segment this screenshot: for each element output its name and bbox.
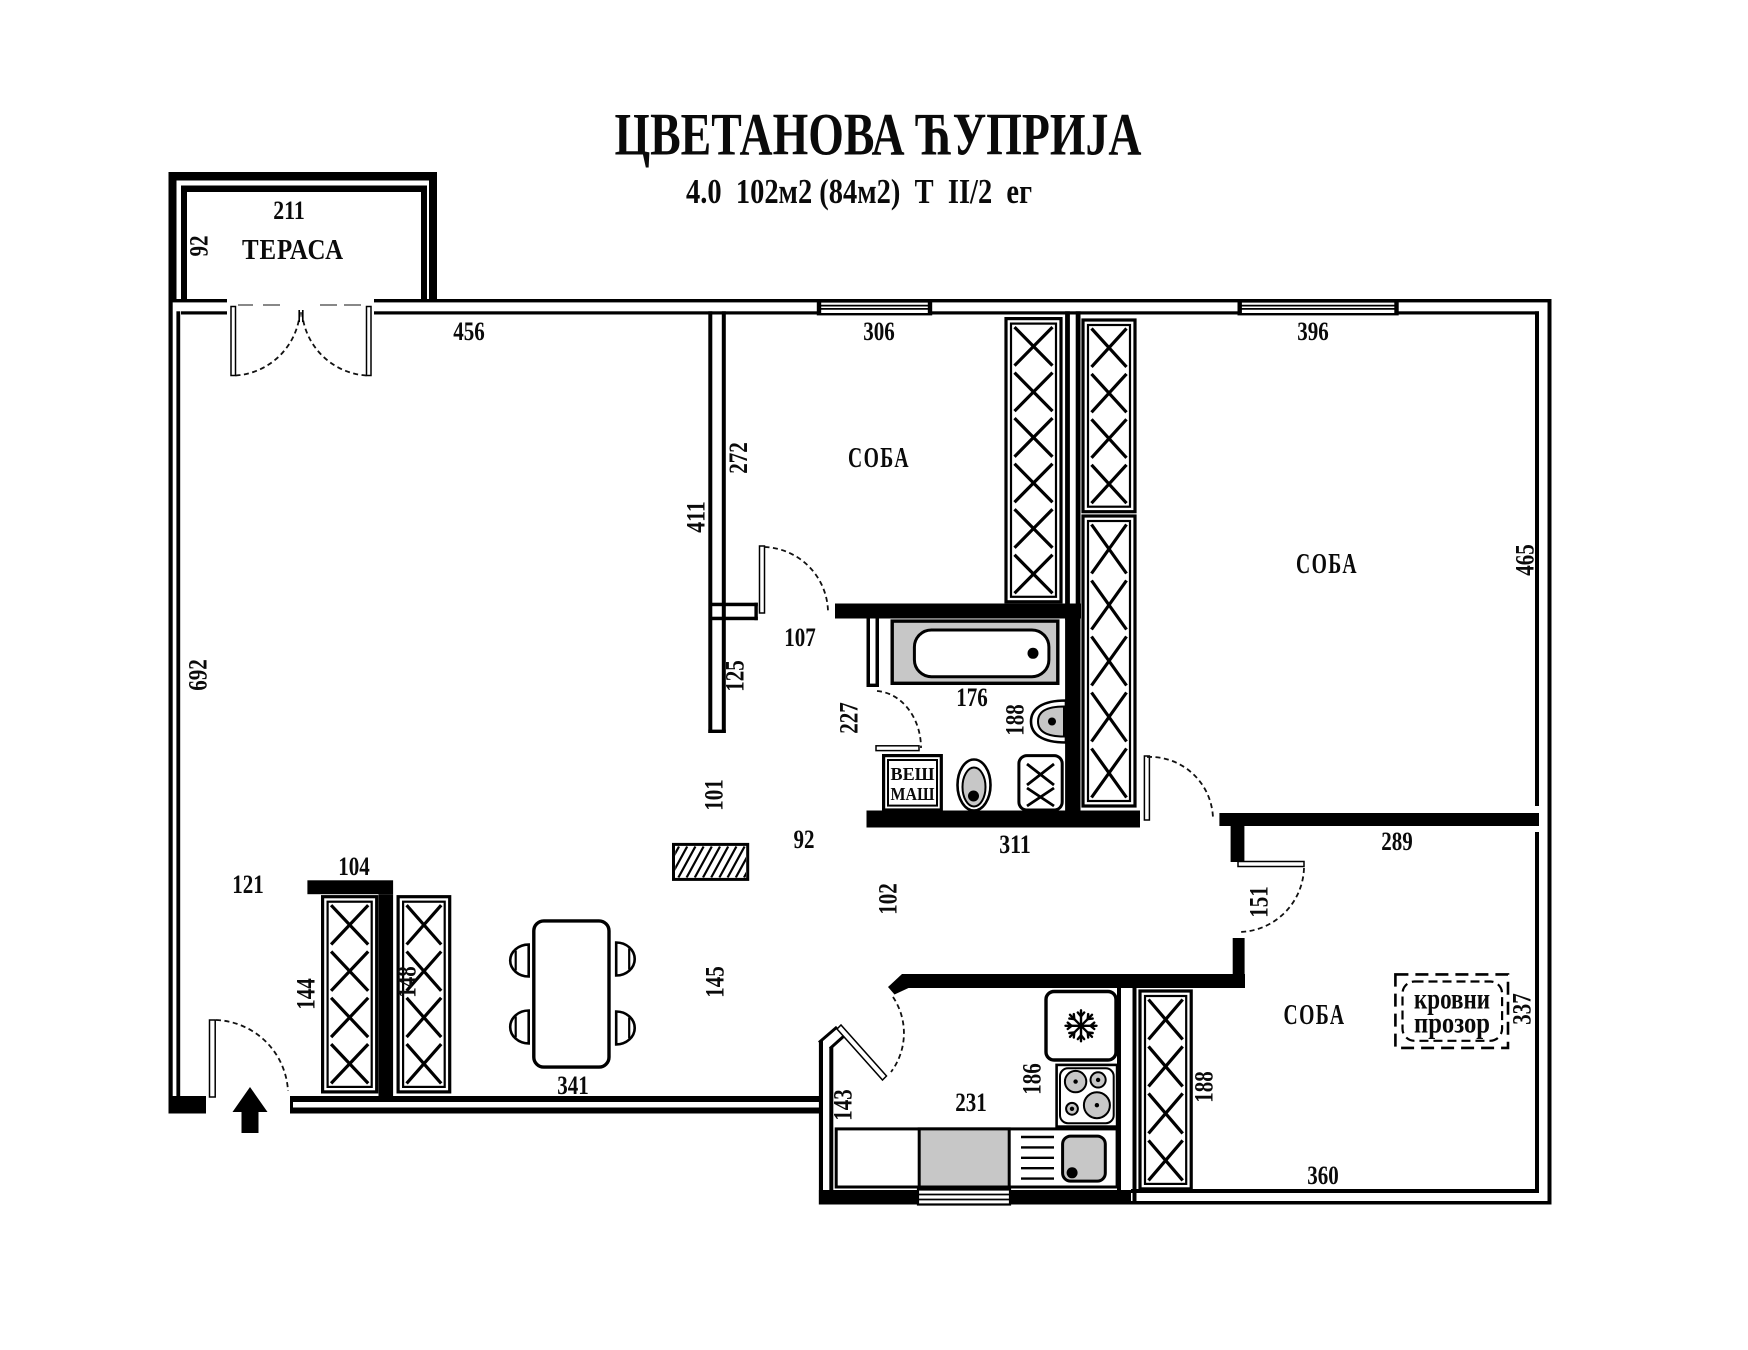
svg-text:456: 456 — [453, 317, 485, 346]
svg-text:СОБА: СОБА — [1296, 549, 1358, 580]
svg-text:188: 188 — [1001, 704, 1030, 736]
svg-text:92: 92 — [794, 825, 815, 854]
svg-text:411: 411 — [682, 501, 711, 533]
svg-text:102: 102 — [874, 883, 903, 915]
svg-text:341: 341 — [557, 1071, 589, 1100]
svg-text:360: 360 — [1307, 1161, 1339, 1190]
svg-text:337: 337 — [1508, 993, 1537, 1025]
svg-text:186: 186 — [1018, 1063, 1047, 1095]
svg-text:прозор: прозор — [1414, 1007, 1490, 1040]
svg-text:121: 121 — [232, 870, 264, 899]
svg-text:396: 396 — [1297, 317, 1329, 346]
svg-text:СОБА: СОБА — [1284, 1000, 1346, 1031]
svg-text:ТЕРАСА: ТЕРАСА — [242, 235, 344, 266]
svg-text:289: 289 — [1381, 827, 1413, 856]
svg-text:306: 306 — [863, 317, 895, 346]
svg-text:188: 188 — [1190, 1071, 1219, 1103]
svg-text:143: 143 — [829, 1089, 858, 1121]
svg-text:4.0 102м2 (84м2) Т II/2 ег: 4.0 102м2 (84м2) Т II/2 ег — [686, 172, 1032, 211]
svg-text:МАШ: МАШ — [891, 784, 935, 804]
svg-text:СОБА: СОБА — [848, 443, 910, 474]
svg-text:151: 151 — [1245, 886, 1274, 918]
svg-text:465: 465 — [1511, 544, 1540, 576]
svg-text:272: 272 — [724, 442, 753, 474]
svg-text:211: 211 — [273, 196, 305, 225]
svg-text:311: 311 — [999, 830, 1031, 859]
svg-text:107: 107 — [784, 623, 816, 652]
svg-text:101: 101 — [700, 779, 729, 811]
svg-text:ВЕШ: ВЕШ — [891, 764, 935, 784]
svg-text:144: 144 — [292, 978, 321, 1010]
svg-text:148: 148 — [393, 966, 422, 998]
svg-text:231: 231 — [955, 1088, 987, 1117]
svg-text:176: 176 — [956, 683, 988, 712]
svg-text:692: 692 — [184, 659, 213, 691]
svg-text:125: 125 — [721, 660, 750, 692]
svg-text:92: 92 — [185, 236, 214, 257]
svg-text:104: 104 — [338, 852, 370, 881]
svg-text:ЦВЕТАНОВА ЋУПРИЈА: ЦВЕТАНОВА ЋУПРИЈА — [615, 102, 1142, 168]
svg-text:145: 145 — [701, 966, 730, 998]
svg-text:227: 227 — [835, 702, 864, 734]
